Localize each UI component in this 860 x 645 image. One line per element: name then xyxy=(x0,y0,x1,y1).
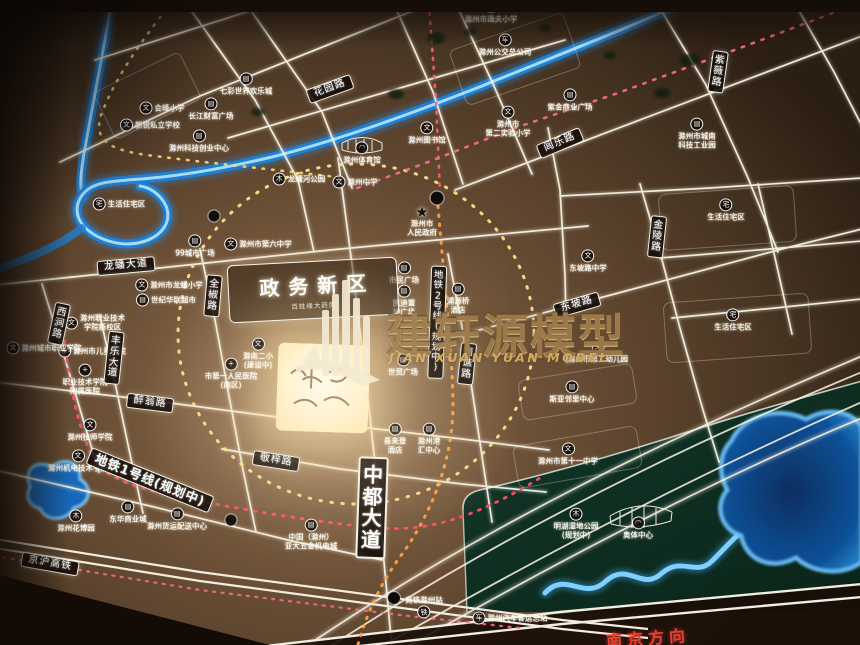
biz-icon: ▤ xyxy=(136,294,149,307)
school-icon: 文 xyxy=(592,340,605,353)
poi-label[interactable]: +职业技术学院 附属医院 xyxy=(63,364,108,397)
plaque-scribble xyxy=(275,342,370,433)
poi-text: 滁州体育馆 xyxy=(343,155,381,164)
poi-text: 市第一人民医院 (南区) xyxy=(205,372,258,391)
poi-text: 滁州货运配送中心 xyxy=(147,521,207,530)
poi-text: 滁州中学 xyxy=(348,177,378,186)
poi-label[interactable]: ▤世贸广场 xyxy=(388,353,418,376)
poi-text: 滁州图书馆 xyxy=(408,135,446,144)
poi-text: 龙蟠河公园 xyxy=(288,174,326,183)
school-icon: 文 xyxy=(135,279,148,292)
poi-label[interactable]: +市第一人民医院 (南区) xyxy=(205,358,258,391)
poi-label[interactable]: 文滁州职业技术 学院新校区 xyxy=(65,314,125,333)
home-icon: 宅 xyxy=(727,308,740,321)
district-sub-label: 百姓缘大药房 xyxy=(291,299,336,311)
poi-text: 滁州汽车客运总站 xyxy=(488,613,548,622)
biz-icon: ▤ xyxy=(122,500,135,513)
biz-icon: ▤ xyxy=(193,129,206,142)
biz-icon: ▤ xyxy=(188,234,201,247)
bus-icon: 车 xyxy=(473,612,486,625)
poi-text: 高铁滁州站 xyxy=(405,595,443,604)
map-board: 政务新区 百姓缘大药房 建轩源模型 JIAN XUAN YUAN MOD xyxy=(0,0,860,645)
poi-text: 滁州市第六中学 xyxy=(239,239,292,248)
poi-label[interactable]: 文滁州市 第二实验小学 xyxy=(486,106,531,139)
poi-text: 世贸广场 xyxy=(388,367,418,376)
rail-icon: 铁 xyxy=(418,606,431,619)
poi-text: 中国（滁州） 亚大五金机电城 xyxy=(285,533,338,552)
school-icon: 文 xyxy=(72,449,85,462)
school-icon: 文 xyxy=(421,121,434,134)
trees xyxy=(251,24,700,116)
bus-icon: 车 xyxy=(499,33,512,46)
school-icon: 文 xyxy=(485,0,498,13)
poi-label[interactable]: ▤浦源桥 酒店 xyxy=(447,283,470,316)
poi-text: 世纪华联超市 xyxy=(151,295,196,304)
poi-label[interactable]: 文滁州市第十一中学 xyxy=(538,442,598,465)
poi-label[interactable]: 文会峰小学 xyxy=(140,102,185,115)
poi-text: 职业技术学院 附属医院 xyxy=(63,378,108,397)
project-site-plaque[interactable] xyxy=(275,342,370,433)
park-icon: 木 xyxy=(70,509,83,522)
poi-label[interactable]: ▤七彩世界欢乐城 xyxy=(220,72,273,95)
school-icon: 文 xyxy=(252,338,265,351)
poi-label[interactable]: 文滁州市龙蟠小学 xyxy=(135,279,203,292)
poi-label[interactable]: 文滁州图书馆 xyxy=(408,121,446,144)
poi-text: 生活住宅区 xyxy=(108,199,146,208)
poi-text: 生活住宅区 xyxy=(707,212,745,221)
poi-label[interactable]: ▤紫金商业广场 xyxy=(548,88,593,111)
biz-icon: ▤ xyxy=(398,285,411,298)
poi-text: 东坡路中学 xyxy=(569,263,607,272)
school-icon: 文 xyxy=(562,442,575,455)
poi-label[interactable]: 文滁州城市职业学院 xyxy=(7,342,82,355)
poi-label[interactable]: 文滁州市第二幼儿园 xyxy=(568,340,628,363)
poi-label[interactable]: 文滁州市逸夫小学 xyxy=(465,0,518,23)
poi-label[interactable]: 文滁州市第六中学 xyxy=(224,238,292,251)
poi-label[interactable]: 木明湖湿地公园 (规划中) xyxy=(554,508,599,541)
school-icon: 文 xyxy=(333,176,346,189)
poi-text: 长江财富广场 xyxy=(189,111,234,120)
park-icon: 木 xyxy=(570,508,583,521)
biz-icon: ▤ xyxy=(452,283,465,296)
poi-text: 滁州市 第二实验小学 xyxy=(486,120,531,139)
poi-label[interactable]: ▤滁州市城南 科技工业园 xyxy=(678,118,716,151)
poi-text: 滁州市逸夫小学 xyxy=(465,14,518,23)
biz-icon: ▤ xyxy=(171,507,184,520)
school-icon: 文 xyxy=(84,418,97,431)
home-icon: 宅 xyxy=(720,198,733,211)
poi-label[interactable]: ▤东华商业城 xyxy=(109,500,147,523)
poi-text: 生活住宅区 xyxy=(714,322,752,331)
poi-label[interactable]: 高铁滁州站铁 xyxy=(405,595,443,618)
poi-label[interactable]: 木龙蟠河公园 xyxy=(273,173,326,186)
poi-label[interactable]: 车滁州公交总公司 xyxy=(479,33,532,56)
poi-text: 滁州港 汇中心 xyxy=(418,437,441,456)
biz-icon: ▤ xyxy=(205,97,218,110)
poi-label[interactable]: ▤99城市广场 xyxy=(175,234,215,257)
biz-icon: ▤ xyxy=(240,72,253,85)
home-icon: 宅 xyxy=(93,198,106,211)
poi-text: 喜来登 酒店 xyxy=(384,437,407,456)
poi-label[interactable]: 宅生活住宅区 xyxy=(714,308,752,331)
poi-text: 99城市广场 xyxy=(175,248,215,257)
biz-icon: ▤ xyxy=(389,423,402,436)
school-icon: 文 xyxy=(502,106,515,119)
hosp-icon: + xyxy=(79,364,92,377)
stadium-icon: ◠ xyxy=(356,141,369,154)
poi-text: 滁州公交总公司 xyxy=(479,47,532,56)
poi-text: 斯亚邻里中心 xyxy=(550,394,595,403)
poi-text: 滁州市 人民政府 xyxy=(407,219,437,238)
poi-text: 滁州市第二幼儿园 xyxy=(568,354,628,363)
poi-label[interactable]: ◠滁州体育馆 xyxy=(343,141,381,164)
poi-text: 浦源桥 酒店 xyxy=(447,297,470,316)
park-icon: 木 xyxy=(273,173,286,186)
poi-label[interactable]: 宅生活住宅区 xyxy=(93,198,146,211)
poi-text: 七彩世界欢乐城 xyxy=(220,86,273,95)
poi-text: 滁州市第十一中学 xyxy=(538,456,598,465)
stadium-icon: ◠ xyxy=(632,516,645,529)
poi-label[interactable]: 宅生活住宅区 xyxy=(707,198,745,221)
poi-text: 滁州市龙蟠小学 xyxy=(150,280,203,289)
poi-text: 明湖湿地公园 (规划中) xyxy=(554,522,599,541)
biz-icon: ▤ xyxy=(564,88,577,101)
poi-text: 会峰小学 xyxy=(155,103,185,112)
biz-icon: ▤ xyxy=(691,118,704,131)
poi-text: 东华商业城 xyxy=(109,514,147,523)
school-icon: 文 xyxy=(224,238,237,251)
poi-text: 滁州技师学院 xyxy=(68,432,113,441)
biz-icon: ▤ xyxy=(305,519,318,532)
poi-label[interactable]: ▤滁州港 汇中心 xyxy=(418,423,441,456)
school-icon: 文 xyxy=(140,102,153,115)
poi-label[interactable]: ▤斯亚邻里中心 xyxy=(550,380,595,403)
poi-label[interactable]: ▤滁州科技创业中心 xyxy=(169,129,229,152)
school-icon: 文 xyxy=(120,119,133,132)
poi-label[interactable]: ▤长江财富广场 xyxy=(189,97,234,120)
hosp-icon: + xyxy=(225,358,238,371)
poi-label[interactable]: 文滁州中学 xyxy=(333,176,378,189)
biz-icon: ▤ xyxy=(397,353,410,366)
gov-icon: ★ xyxy=(415,206,429,218)
poi-label[interactable]: ▤喜来登 酒店 xyxy=(384,423,407,456)
district-box-zhengwu: 政务新区 百姓缘大药房 xyxy=(227,257,400,324)
poi-text: 滁州科技创业中心 xyxy=(169,143,229,152)
poi-text: 奥体中心 xyxy=(623,530,653,539)
poi-text: 滁州城市职业学院 xyxy=(22,343,82,352)
poi-label[interactable]: 文滁州技师学院 xyxy=(68,418,113,441)
poi-text: 滁州职业技术 学院新校区 xyxy=(80,314,125,333)
poi-label[interactable]: ◠奥体中心 xyxy=(623,516,653,539)
school-icon: 文 xyxy=(7,342,20,355)
biz-icon: ▤ xyxy=(423,423,436,436)
road-label: 中 都 大 道 xyxy=(355,456,389,559)
poi-label[interactable]: 木滁州花博园 xyxy=(57,509,95,532)
poi-label[interactable]: ★滁州市 人民政府 xyxy=(407,206,437,238)
poi-label[interactable]: ▤世纪华联超市 xyxy=(136,294,196,307)
poi-label[interactable]: 文东坡路中学 xyxy=(569,249,607,272)
poi-label[interactable]: ▤滁州货运配送中心 xyxy=(147,507,207,530)
school-icon: 文 xyxy=(582,249,595,262)
biz-icon: ▤ xyxy=(566,380,579,393)
biz-icon: ▤ xyxy=(398,261,411,274)
poi-text: 紫金商业广场 xyxy=(548,102,593,111)
district-title: 政务新区 xyxy=(250,267,376,303)
poi-label[interactable]: ▤中国（滁州） 亚大五金机电城 xyxy=(285,519,338,552)
poi-text: 滁州市城南 科技工业园 xyxy=(678,132,716,151)
poi-text: 滁州花博园 xyxy=(57,523,95,532)
poi-label[interactable]: 车滁州汽车客运总站 xyxy=(473,612,548,625)
poi-text: 新锐私立学校 xyxy=(135,120,180,129)
